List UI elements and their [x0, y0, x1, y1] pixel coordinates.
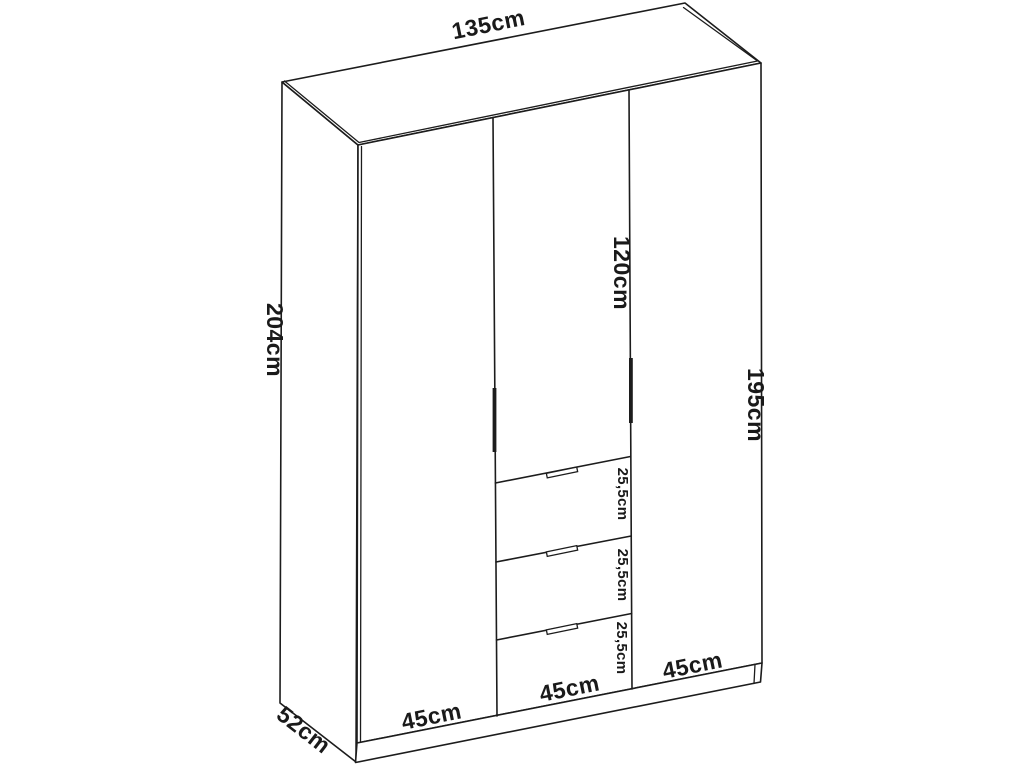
label-drawer2-height: 25,5cm	[614, 549, 631, 602]
label-middle-door-height: 120cm	[609, 236, 635, 310]
label-drawer3-height: 25,5cm	[613, 622, 630, 675]
label-drawer1-height: 25,5cm	[614, 468, 631, 521]
wardrobe-dimension-diagram: 135cm 204cm 120cm 195cm 25,5cm 25,5cm 25…	[0, 0, 1024, 768]
door-handle-right	[629, 358, 633, 423]
label-total-height: 204cm	[262, 303, 288, 377]
door-handle-left	[493, 388, 497, 452]
side-panel-face	[280, 82, 358, 762]
wardrobe-diagram-canvas: 135cm 204cm 120cm 195cm 25,5cm 25,5cm 25…	[0, 0, 1024, 768]
label-door-height: 195cm	[743, 368, 769, 442]
front-face	[357, 63, 762, 743]
